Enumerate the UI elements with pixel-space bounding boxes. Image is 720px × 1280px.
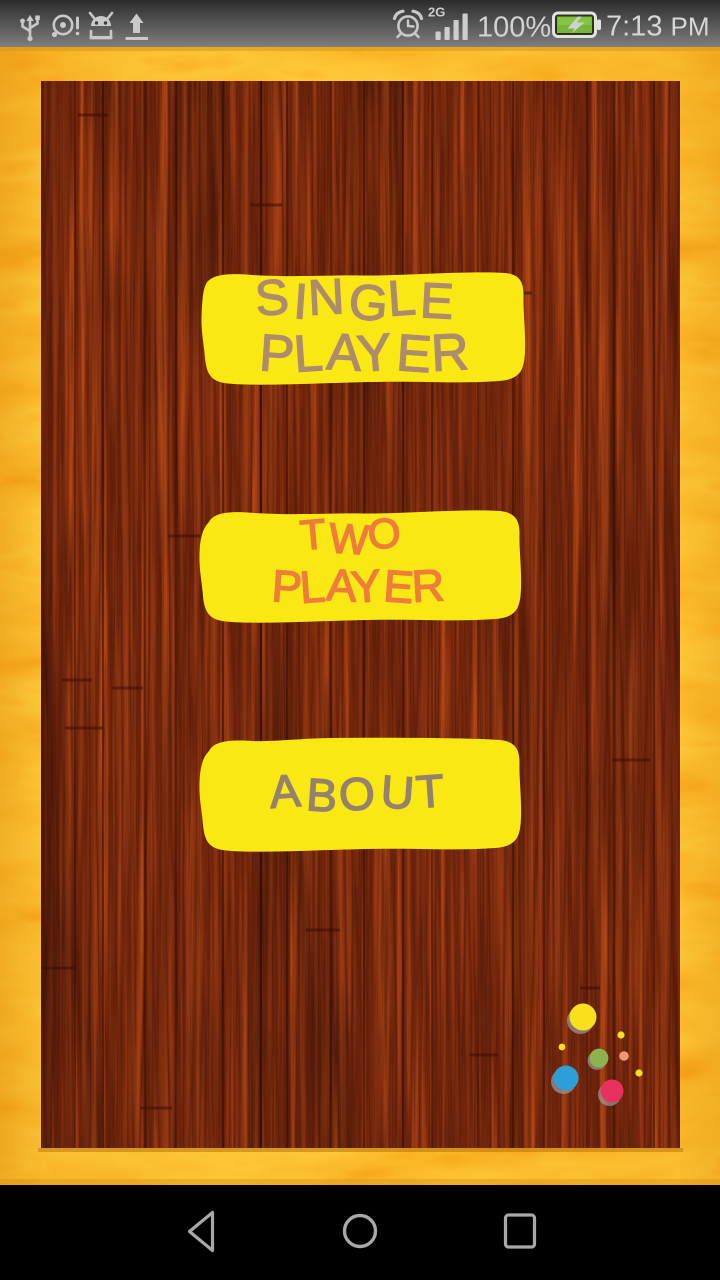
- svg-text:TWO: TWO: [298, 509, 403, 564]
- svg-text:7:13 PM: 7:13 PM: [606, 11, 710, 43]
- svg-text:100%: 100%: [477, 12, 551, 44]
- svg-text:2G: 2G: [428, 5, 445, 20]
- svg-text:SINGLE: SINGLE: [253, 268, 458, 333]
- svg-text:ABOUT: ABOUT: [268, 764, 450, 823]
- svg-text:PLAYER: PLAYER: [270, 559, 445, 613]
- svg-text:PLAYER: PLAYER: [257, 323, 472, 385]
